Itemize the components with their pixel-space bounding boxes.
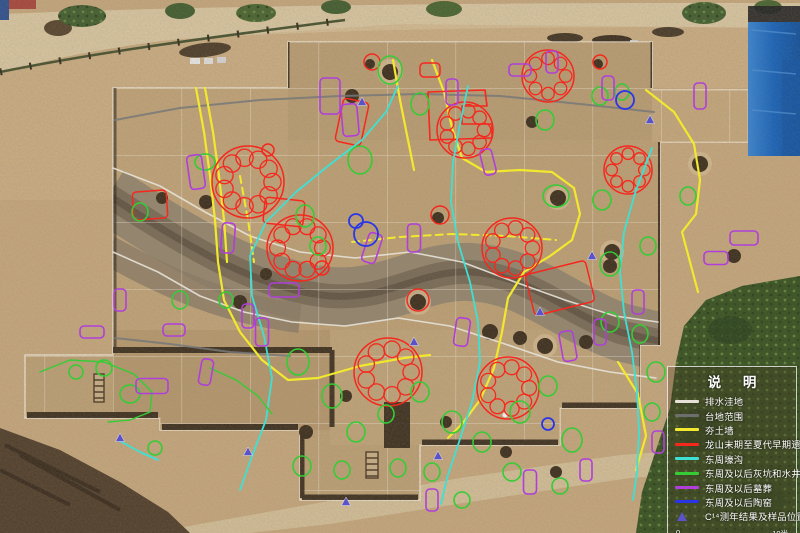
legend-item-moat: 东周壕沟 <box>675 452 789 466</box>
legend-color-swatch <box>675 457 701 460</box>
legend-color-swatch <box>675 414 701 417</box>
legend-item-label: 东周及以后灰坑和水井 <box>705 466 800 480</box>
swatch-mark <box>675 486 699 489</box>
legend-item-label: 排水洼地 <box>705 394 743 408</box>
swatch-mark <box>677 512 687 521</box>
legend-color-swatch <box>675 400 701 403</box>
scale-bar-start-label: 0 <box>676 528 680 533</box>
legend-item-label: 台地范围 <box>705 409 743 423</box>
legend-title: 说 明 <box>675 371 789 391</box>
legend-item-longshan: 龙山末期至夏代早期遗迹 <box>675 437 789 451</box>
site-figure: 说 明 排水洼地台地范围夯土墙龙山末期至夏代早期遗迹东周壕沟东周及以后灰坑和水井… <box>0 0 800 533</box>
swatch-mark <box>675 500 699 503</box>
swatch-mark <box>675 472 699 475</box>
legend-item-label: 东周壕沟 <box>705 452 743 466</box>
legend-color-swatch <box>675 428 701 431</box>
legend-item-label: C¹⁴测年结果及样品位置 <box>705 509 800 523</box>
c14-triangle-icon <box>675 512 701 521</box>
legend-item-wall: 夯土墙 <box>675 423 789 437</box>
legend-item-tombs: 东周及以后墓葬 <box>675 480 789 494</box>
legend-color-swatch <box>675 443 701 446</box>
legend-item-label: 东周及以后墓葬 <box>705 481 772 495</box>
scale-bar-end-label: 10米 <box>772 528 788 533</box>
legend-color-swatch <box>675 472 701 475</box>
legend-box: 说 明 排水洼地台地范围夯土墙龙山末期至夏代早期遗迹东周壕沟东周及以后灰坑和水井… <box>667 366 797 533</box>
legend-item-terrace: 台地范围 <box>675 408 789 422</box>
swatch-mark <box>675 400 699 403</box>
legend-item-pits: 东周及以后灰坑和水井 <box>675 466 789 480</box>
legend-color-swatch <box>675 500 701 503</box>
legend-item-c14: C¹⁴测年结果及样品位置 <box>675 509 789 523</box>
legend-color-swatch <box>675 486 701 489</box>
legend-item-label: 东周及以后陶窑 <box>705 495 772 509</box>
legend-item-drainage: 排水洼地 <box>675 394 789 408</box>
swatch-mark <box>675 414 699 417</box>
swatch-mark <box>675 457 699 460</box>
legend-item-label: 夯土墙 <box>705 423 734 437</box>
legend-item-label: 龙山末期至夏代早期遗迹 <box>705 437 800 451</box>
swatch-mark <box>675 443 699 446</box>
legend-item-kilns: 东周及以后陶窑 <box>675 495 789 509</box>
legend-items: 排水洼地台地范围夯土墙龙山末期至夏代早期遗迹东周壕沟东周及以后灰坑和水井东周及以… <box>675 394 789 524</box>
scale-bar: 0 10米 <box>675 528 789 533</box>
swatch-mark <box>675 428 699 431</box>
